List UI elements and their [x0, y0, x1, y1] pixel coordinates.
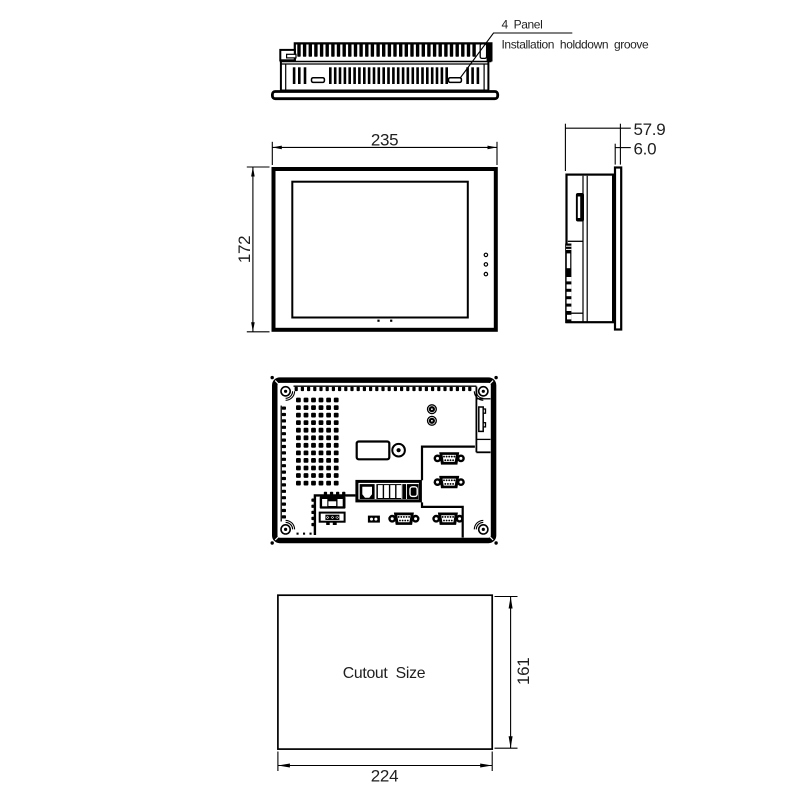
svg-text:224: 224	[371, 767, 398, 786]
svg-text:235: 235	[371, 130, 398, 149]
svg-text:161: 161	[514, 658, 533, 685]
svg-text:57.9: 57.9	[634, 120, 666, 139]
svg-text:4 Panel: 4 Panel	[502, 18, 543, 32]
svg-text:172: 172	[235, 236, 254, 263]
svg-text:Installation holddown groove: Installation holddown groove	[502, 38, 649, 52]
svg-text:Cutout Size: Cutout Size	[343, 665, 426, 682]
svg-text:6.0: 6.0	[634, 139, 657, 158]
